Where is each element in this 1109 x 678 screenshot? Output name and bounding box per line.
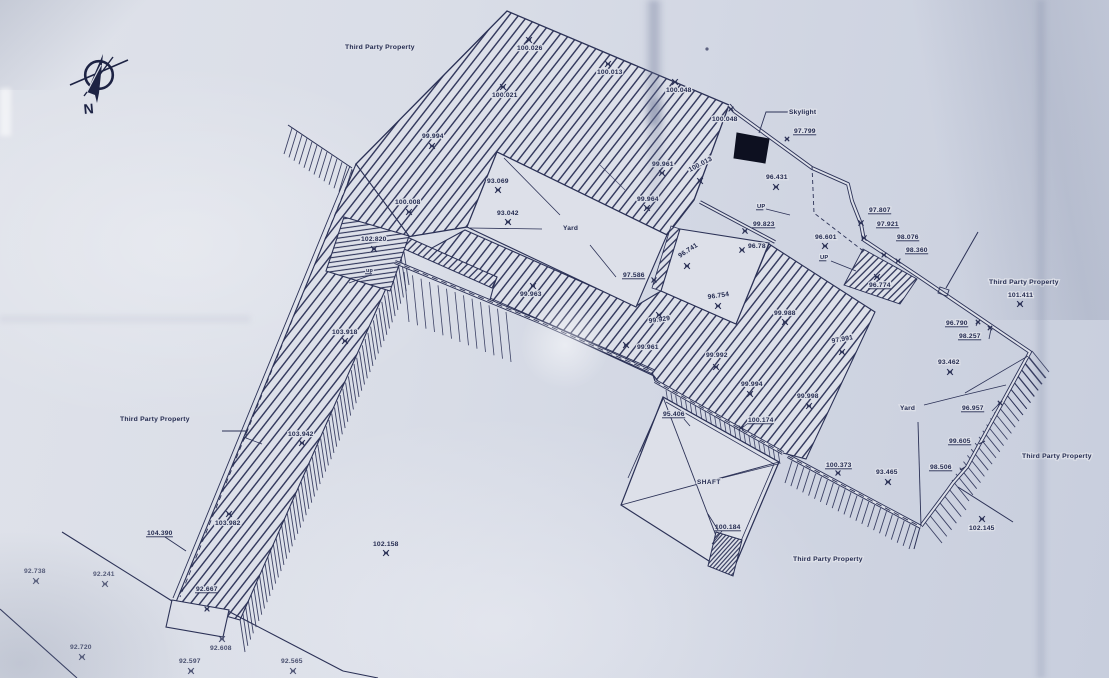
svg-text:98.257: 98.257 [959, 333, 981, 340]
svg-text:Yard: Yard [900, 405, 915, 412]
svg-text:92.597: 92.597 [179, 658, 201, 665]
svg-text:97.807: 97.807 [869, 207, 891, 214]
svg-text:99.964: 99.964 [637, 196, 659, 203]
svg-text:93.069: 93.069 [487, 178, 509, 185]
svg-text:96.431: 96.431 [766, 174, 788, 181]
svg-text:97.921: 97.921 [877, 221, 899, 228]
svg-text:N: N [83, 100, 94, 117]
svg-text:Third Party Property: Third Party Property [345, 44, 415, 51]
svg-text:96.601: 96.601 [815, 234, 837, 241]
svg-text:UP: UP [757, 204, 765, 210]
svg-text:93.462: 93.462 [938, 359, 960, 366]
svg-text:102.145: 102.145 [969, 525, 995, 532]
svg-text:96.78: 96.78 [748, 243, 766, 250]
svg-text:100.026: 100.026 [517, 45, 543, 52]
svg-text:98.506: 98.506 [930, 464, 952, 471]
svg-text:102.158: 102.158 [373, 541, 399, 548]
svg-text:93.465: 93.465 [876, 469, 898, 476]
svg-text:99.605: 99.605 [949, 438, 971, 445]
svg-text:103.918: 103.918 [332, 329, 358, 336]
svg-text:Third Party Property: Third Party Property [989, 279, 1059, 286]
svg-text:100.174: 100.174 [748, 417, 774, 424]
svg-text:101.411: 101.411 [1008, 292, 1033, 299]
svg-text:92.565: 92.565 [281, 658, 303, 665]
svg-text:96.790: 96.790 [946, 320, 968, 327]
svg-text:100.184: 100.184 [715, 524, 741, 531]
svg-text:99.994: 99.994 [741, 381, 763, 388]
svg-text:92.667: 92.667 [196, 586, 218, 593]
svg-text:95.406: 95.406 [663, 411, 685, 418]
svg-text:93.042: 93.042 [497, 210, 519, 217]
svg-text:Third Party Property: Third Party Property [120, 416, 190, 423]
svg-text:Third Party Property: Third Party Property [1022, 453, 1092, 460]
svg-text:96.957: 96.957 [962, 405, 984, 412]
svg-text:103.942: 103.942 [288, 431, 314, 438]
svg-text:98.360: 98.360 [906, 247, 928, 254]
svg-text:99.961: 99.961 [652, 161, 674, 168]
svg-text:97.799: 97.799 [794, 128, 816, 135]
svg-text:99.961: 99.961 [637, 344, 659, 351]
svg-text:102.820: 102.820 [361, 236, 387, 243]
svg-text:100.048: 100.048 [712, 116, 738, 123]
svg-text:Skylight: Skylight [789, 109, 817, 116]
svg-text:103.982: 103.982 [215, 520, 241, 527]
svg-text:UP: UP [820, 255, 828, 261]
svg-text:92.608: 92.608 [210, 645, 232, 652]
svg-text:100.373: 100.373 [826, 462, 852, 469]
svg-text:99.998: 99.998 [797, 393, 819, 400]
svg-text:100.048: 100.048 [666, 87, 692, 94]
svg-text:96.774: 96.774 [869, 282, 891, 289]
svg-text:92.720: 92.720 [70, 644, 92, 651]
svg-text:99.992: 99.992 [706, 352, 728, 359]
svg-text:99.988: 99.988 [774, 310, 796, 317]
svg-text:98.076: 98.076 [897, 234, 919, 241]
svg-text:97.586: 97.586 [623, 272, 645, 279]
svg-text:Yard: Yard [563, 225, 578, 232]
svg-text:99.994: 99.994 [422, 133, 444, 140]
svg-text:100.021: 100.021 [492, 92, 518, 99]
svg-text:Third Party Property: Third Party Property [793, 556, 863, 563]
svg-text:99.823: 99.823 [753, 221, 775, 228]
svg-text:100.013: 100.013 [597, 69, 623, 76]
svg-text:100.008: 100.008 [395, 199, 421, 206]
svg-text:92.738: 92.738 [24, 568, 46, 575]
svg-text:104.390: 104.390 [147, 530, 173, 537]
svg-text:92.241: 92.241 [93, 571, 115, 578]
svg-text:up: up [366, 268, 373, 274]
svg-text:99.963: 99.963 [520, 291, 542, 298]
svg-text:SHAFT: SHAFT [697, 479, 721, 486]
